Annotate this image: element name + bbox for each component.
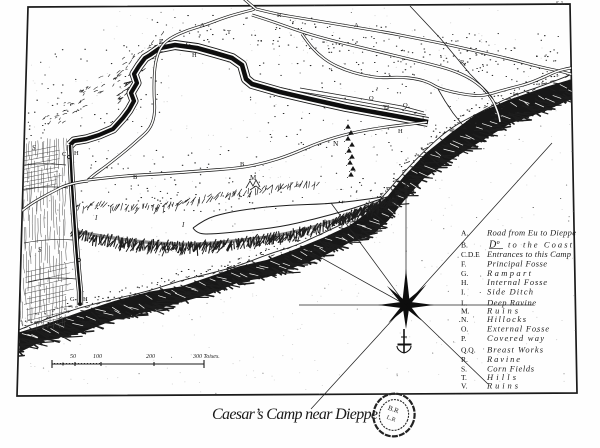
svg-text:I.: I. <box>461 288 465 297</box>
svg-text:B.: B. <box>461 241 468 250</box>
svg-text:External Fosse: External Fosse <box>486 324 549 334</box>
svg-text:A: A <box>200 22 205 29</box>
svg-text:R: R <box>277 12 282 19</box>
svg-text:I: I <box>422 115 424 122</box>
svg-text:F.: F. <box>461 260 467 269</box>
svg-text:H: H <box>398 128 403 135</box>
svg-text:N.: N. <box>461 315 468 324</box>
svg-text:Breast Works: Breast Works <box>487 345 544 355</box>
svg-text:S: S <box>32 144 36 152</box>
svg-text:R: R <box>460 59 465 66</box>
svg-text:£.1.: £.1. <box>556 1 566 7</box>
svg-text:C: C <box>62 151 66 158</box>
svg-text:T: T <box>227 29 231 36</box>
svg-text:Covered way: Covered way <box>487 333 544 343</box>
svg-text:Side Ditch: Side Ditch <box>487 287 533 297</box>
svg-text:H.: H. <box>461 278 468 287</box>
svg-text:N: N <box>333 139 339 148</box>
svg-text:I: I <box>181 221 185 229</box>
svg-text:O.: O. <box>461 325 468 334</box>
svg-text:C.D.E: C.D.E <box>461 250 480 259</box>
svg-text:H: H <box>83 296 88 303</box>
svg-text:200: 200 <box>146 354 155 360</box>
svg-text:Road from Eu to Dieppe: Road from Eu to Dieppe <box>486 228 576 238</box>
svg-text:Q.Q.: Q.Q. <box>461 346 476 355</box>
svg-text:R.: R. <box>461 355 468 364</box>
svg-text:B.R: B.R <box>387 404 400 415</box>
svg-text:Ruins: Ruins <box>486 381 519 391</box>
svg-text:H: H <box>192 52 197 59</box>
svg-text:B: B <box>133 174 138 181</box>
svg-text:Corn Fields: Corn Fields <box>487 364 535 374</box>
svg-text:Caesar’s Camp near Dieppe: Caesar’s Camp near Dieppe <box>212 406 378 423</box>
svg-text:B: B <box>240 161 245 168</box>
svg-text:Hillocks: Hillocks <box>486 314 527 324</box>
svg-text:50: 50 <box>70 354 76 360</box>
svg-text:A.: A. <box>461 229 468 238</box>
svg-text:300 Toises.: 300 Toises. <box>192 354 220 360</box>
svg-text:Q: Q <box>403 102 408 109</box>
svg-text:S: S <box>38 246 42 254</box>
svg-text:Ravine: Ravine <box>486 354 520 364</box>
svg-text:Q: Q <box>369 95 374 102</box>
svg-text:M: M <box>250 174 257 182</box>
svg-text:I: I <box>387 104 389 111</box>
svg-text:H: H <box>74 150 79 157</box>
svg-text:G: G <box>70 296 75 303</box>
svg-text:Internal Fosse: Internal Fosse <box>486 277 547 287</box>
svg-text:A: A <box>354 22 359 29</box>
svg-text:Entrances to this Camp: Entrances to this Camp <box>486 249 571 259</box>
svg-text:G.: G. <box>461 269 468 278</box>
svg-text:Dº: Dº <box>488 240 500 251</box>
svg-text:G: G <box>186 41 191 48</box>
svg-text:100: 100 <box>93 354 102 360</box>
svg-text:P.: P. <box>461 334 466 343</box>
svg-text:V.: V. <box>461 382 467 391</box>
svg-text:I: I <box>94 214 98 222</box>
svg-text:to the Coast: to the Coast <box>508 240 573 250</box>
svg-text:L.R: L.R <box>386 415 397 424</box>
svg-text:P: P <box>159 38 163 45</box>
